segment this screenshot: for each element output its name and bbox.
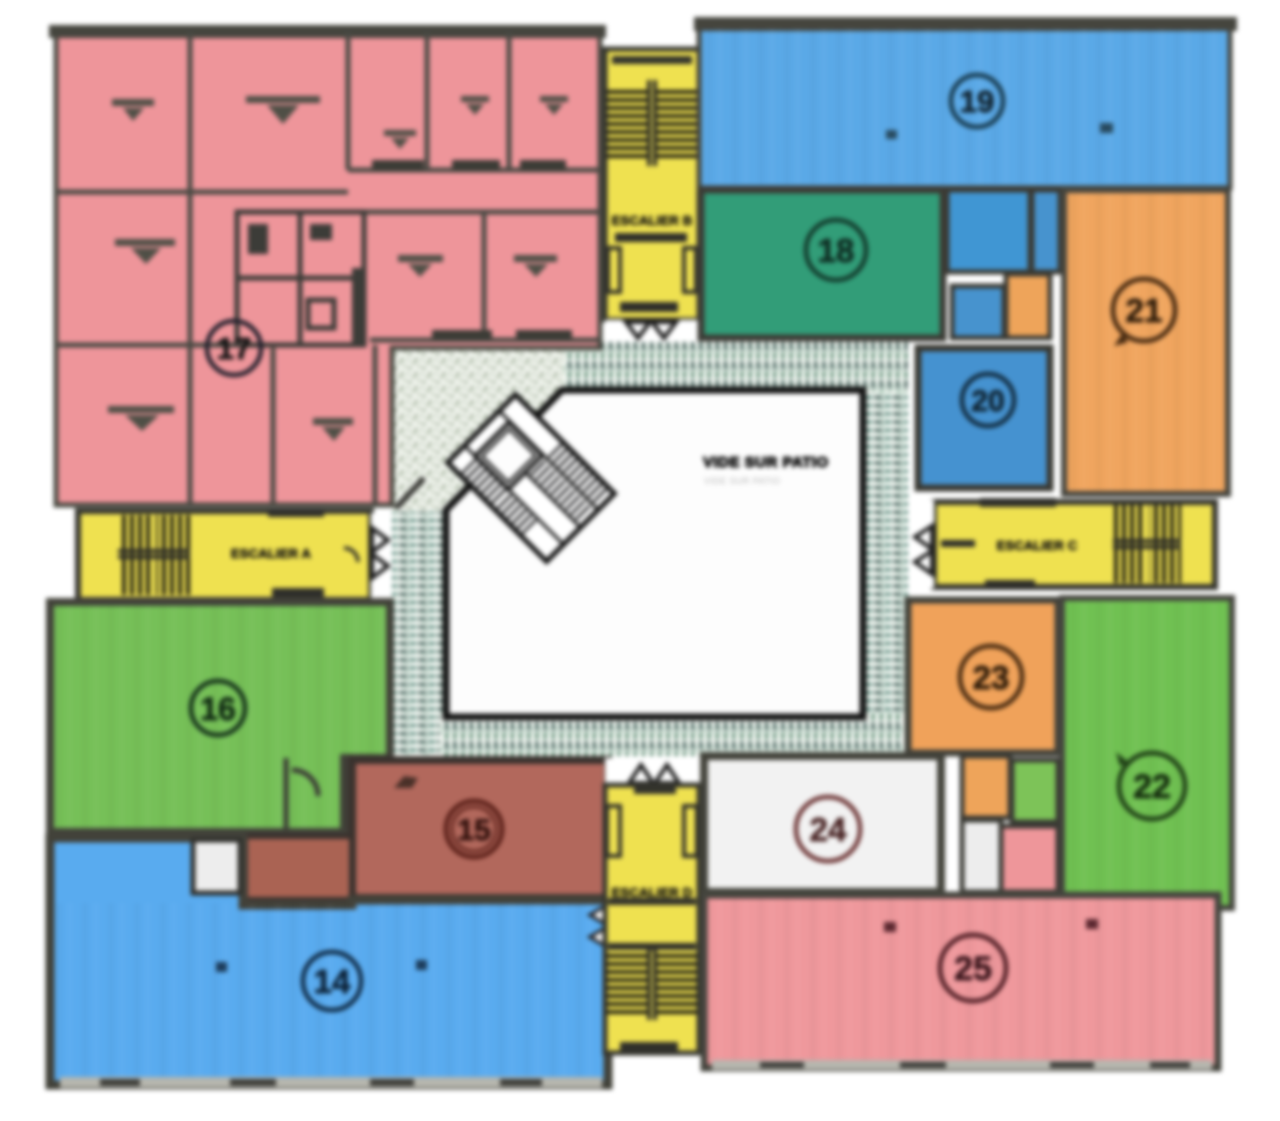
svg-text:15: 15 xyxy=(457,814,490,847)
svg-text:ESCALIER D: ESCALIER D xyxy=(612,885,693,900)
svg-text:ESCALIER B: ESCALIER B xyxy=(612,213,693,228)
svg-text:VIDE SUR PATIO: VIDE SUR PATIO xyxy=(704,476,780,486)
svg-text:25: 25 xyxy=(954,950,992,988)
svg-text:14: 14 xyxy=(314,963,351,1000)
svg-text:20: 20 xyxy=(971,385,1004,418)
svg-text:23: 23 xyxy=(973,659,1010,696)
svg-text:VIDE SUR PATIO: VIDE SUR PATIO xyxy=(703,454,829,471)
svg-text:ESCALIER A: ESCALIER A xyxy=(231,546,312,561)
svg-text:17: 17 xyxy=(217,331,251,366)
svg-text:16: 16 xyxy=(200,691,236,727)
svg-text:22: 22 xyxy=(1133,768,1171,806)
svg-text:ESCALIER C: ESCALIER C xyxy=(997,538,1078,553)
svg-text:21: 21 xyxy=(1126,292,1163,329)
svg-text:18: 18 xyxy=(818,232,855,269)
svg-text:19: 19 xyxy=(960,84,994,119)
svg-text:24: 24 xyxy=(810,811,847,848)
